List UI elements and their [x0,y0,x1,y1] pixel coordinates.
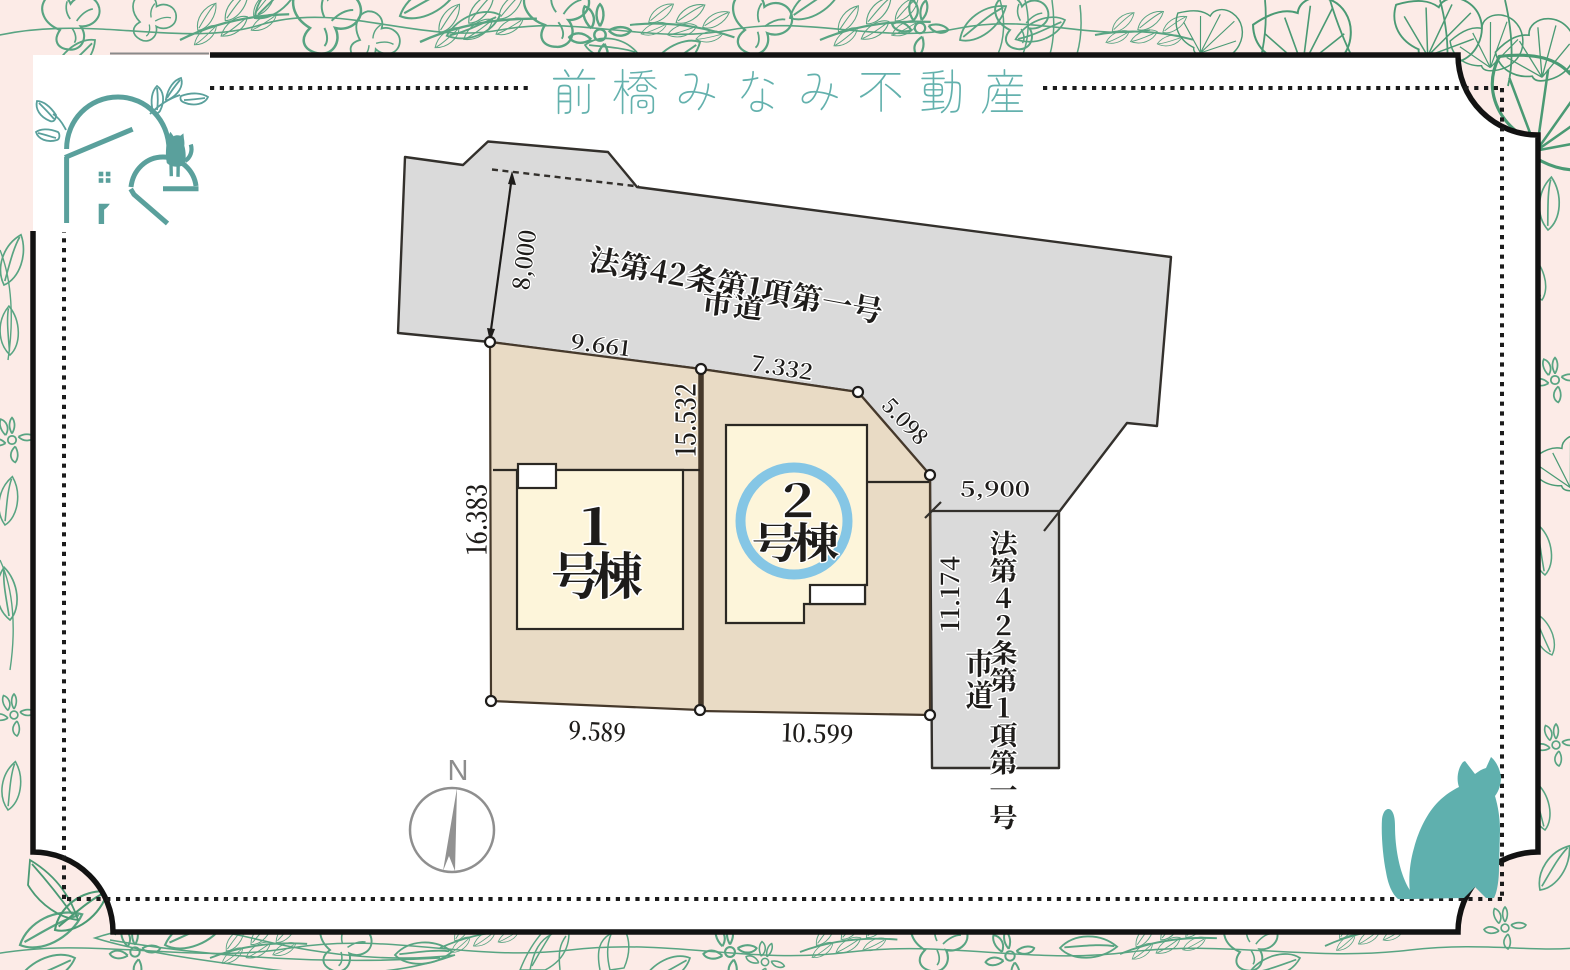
svg-text:N: N [448,755,469,787]
